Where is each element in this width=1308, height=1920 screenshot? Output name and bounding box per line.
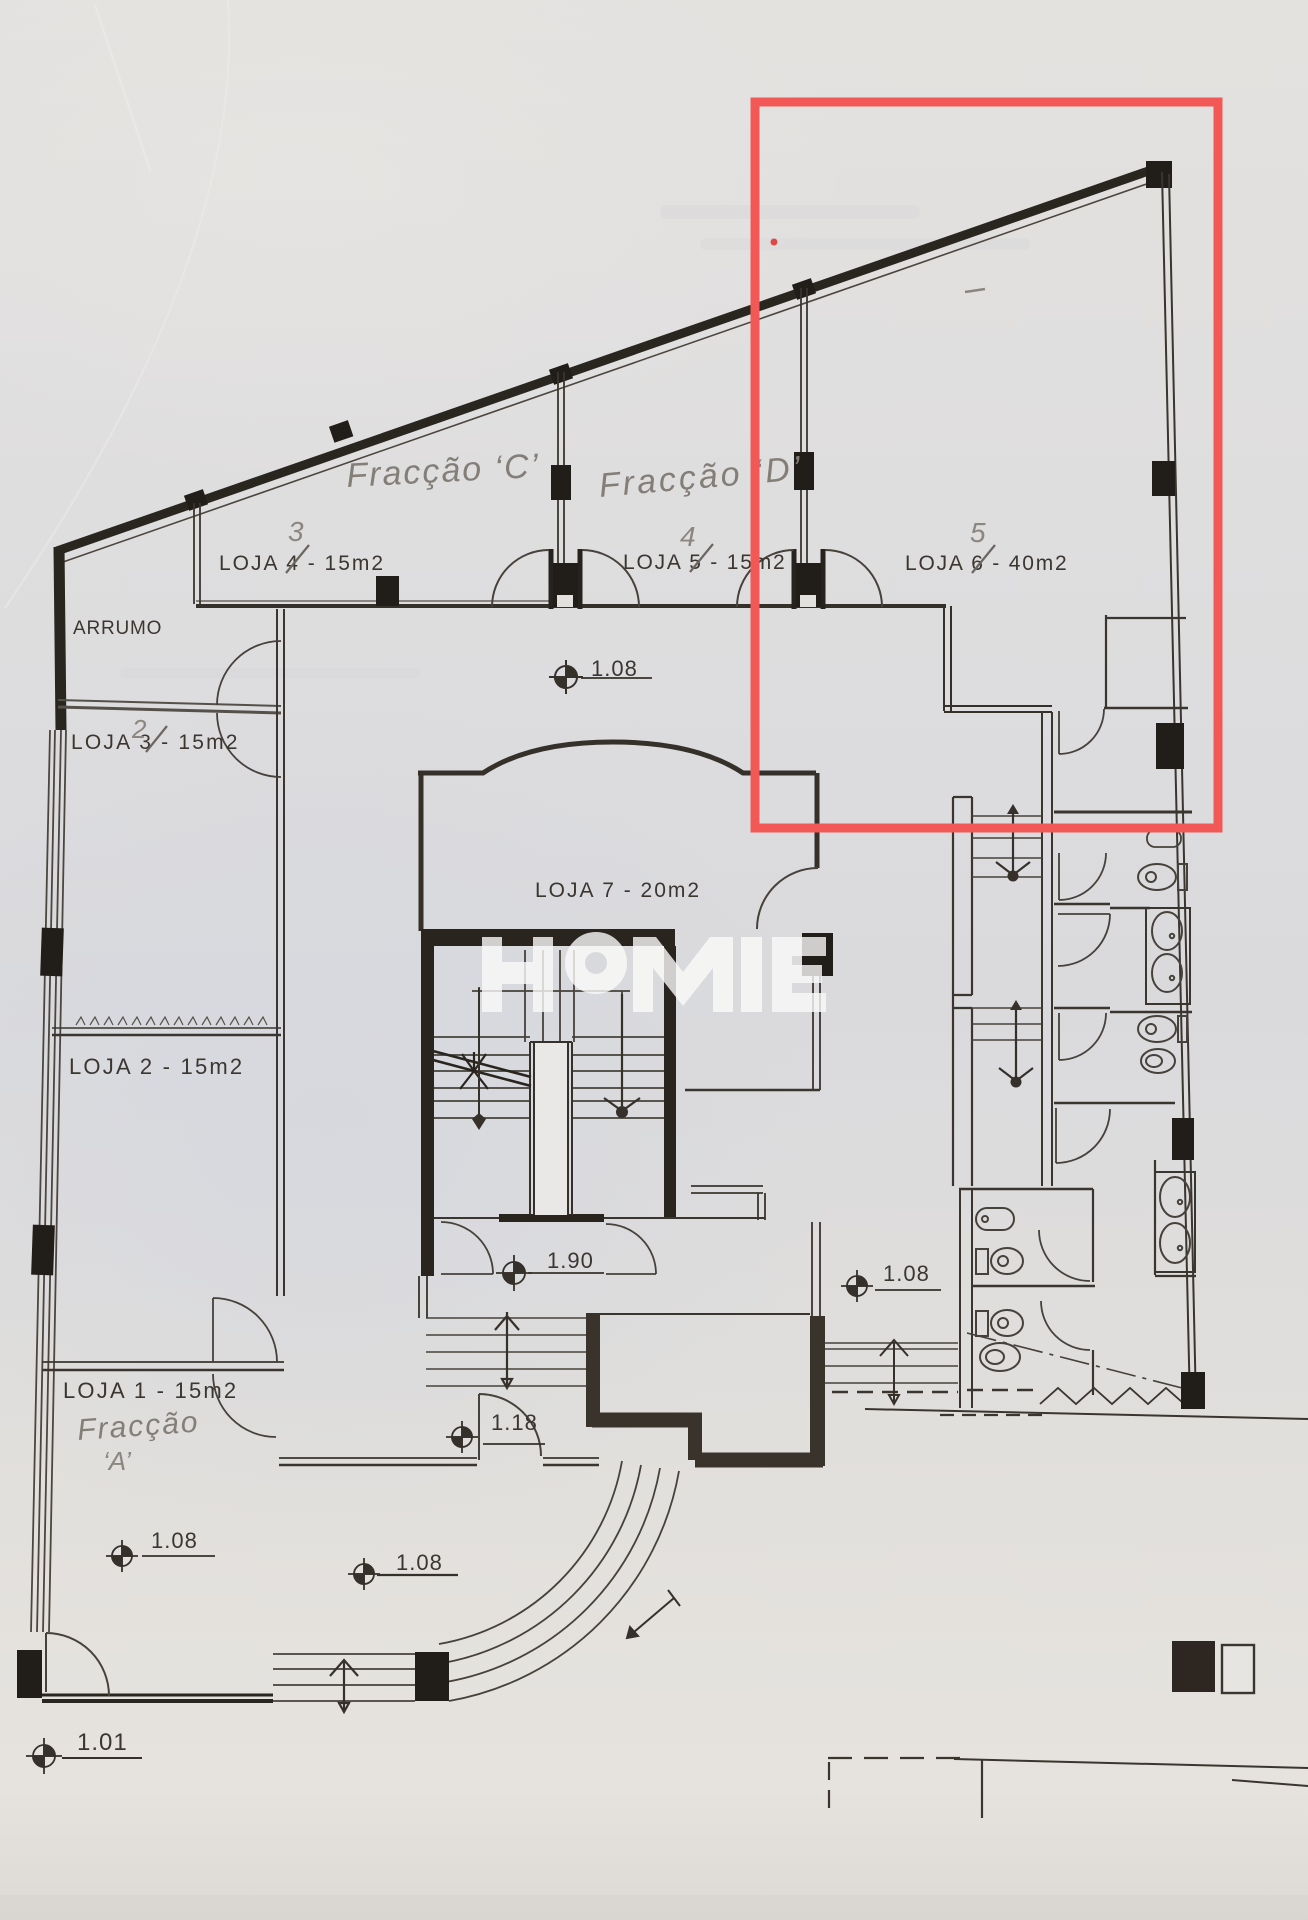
svg-text:‘A’: ‘A’ bbox=[103, 1446, 132, 1476]
svg-text:LOJA 1 - 15m2: LOJA 1 - 15m2 bbox=[63, 1378, 238, 1403]
svg-text:1.90: 1.90 bbox=[547, 1248, 594, 1273]
svg-text:LOJA 4 - 15m2: LOJA 4 - 15m2 bbox=[219, 552, 385, 575]
svg-text:1.08: 1.08 bbox=[151, 1528, 198, 1553]
svg-text:ARRUMO: ARRUMO bbox=[73, 618, 162, 639]
svg-text:2: 2 bbox=[131, 714, 147, 744]
svg-text:LOJA 7 - 20m2: LOJA 7 - 20m2 bbox=[535, 879, 701, 902]
svg-text:1.18: 1.18 bbox=[491, 1410, 538, 1435]
svg-text:3: 3 bbox=[288, 516, 304, 547]
svg-text:LOJA 2 - 15m2: LOJA 2 - 15m2 bbox=[69, 1054, 244, 1079]
svg-text:1.01: 1.01 bbox=[77, 1729, 128, 1756]
svg-text:LOJA 3 - 15m2: LOJA 3 - 15m2 bbox=[71, 731, 240, 754]
svg-text:1.08: 1.08 bbox=[396, 1550, 443, 1575]
svg-text:5: 5 bbox=[970, 517, 986, 548]
svg-text:1.08: 1.08 bbox=[883, 1261, 930, 1286]
svg-text:4: 4 bbox=[680, 521, 696, 552]
